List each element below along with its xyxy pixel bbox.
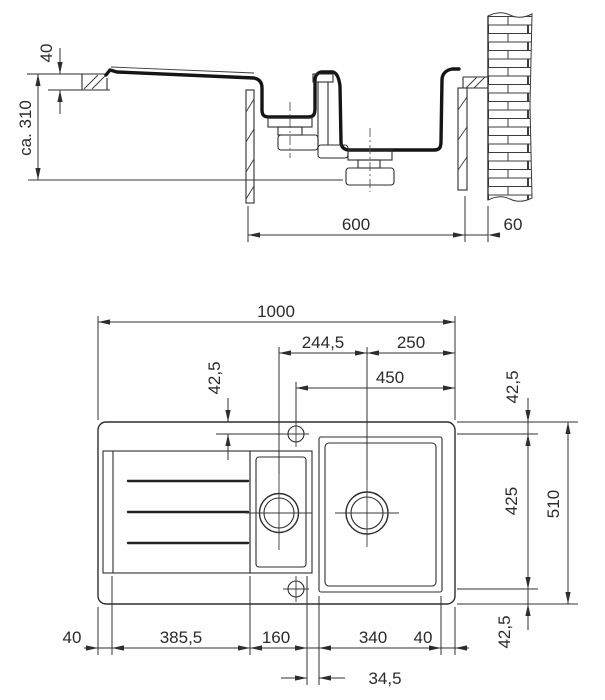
dim-rim-height-label: 40 [37,44,56,63]
dim-clearance-depth-label: ca. 310 [16,100,35,156]
dim-drain-to-edge: 250 [367,333,455,356]
brick-wall [488,13,532,202]
dim-right-bottom-margin: 42,5 [495,589,531,649]
dim-right-margin-label: 40 [414,628,433,647]
dim-overall-width-label: 1000 [257,302,295,321]
dim-tap-span-label: 425 [502,487,521,515]
main-bowl [319,437,442,592]
small-bowl-drain [268,102,318,158]
dim-tap-offset-left: 42,5 [205,361,283,460]
cabinet-panel-left [246,90,254,203]
dim-drain-to-edge-label: 250 [397,333,425,352]
dim-tap-to-edge: 450 [296,368,455,424]
dim-overall-depth: 510 [544,422,571,604]
drainboard [103,451,250,573]
dim-tap-offset-left-label: 42,5 [205,361,224,394]
dim-right-top-margin-label: 42,5 [503,370,522,403]
countertop-right [463,77,488,88]
plan-view: 1000 244,5 250 450 42,5 [63,302,578,688]
dim-wall-clearance: 60 [465,206,522,242]
dim-small-bowl-width-label: 160 [262,628,290,647]
dim-cabinet-width: 600 [248,196,465,242]
dim-drainboard-width-label: 385,5 [160,628,203,647]
dim-clearance-depth: ca. 310 [16,74,41,180]
dim-cabinet-width-label: 600 [342,215,370,234]
dim-right-bottom-margin-label: 42,5 [495,615,514,648]
dim-tap-span: 425 [502,434,531,589]
dim-drain-spacing-label: 244,5 [302,333,345,352]
drawing-svg: 40 ca. 310 600 60 [0,0,605,700]
tap-hole-bottom [283,576,309,602]
sink-profile [106,69,459,150]
dim-rim-height: 40 [37,44,63,114]
tap-hole-top [283,421,309,447]
dim-tap-to-edge-label: 450 [376,368,404,387]
sink-technical-drawing: 40 ca. 310 600 60 [0,0,605,700]
main-bowl-drain [346,128,394,192]
dim-bowl-gap-label: 34,5 [368,669,401,688]
dim-right-top-margin: 42,5 [503,370,531,434]
dim-bowl-gap: 34,5 [281,669,402,688]
dim-overall-width: 1000 [98,302,455,420]
dim-drain-spacing: 244,5 [279,333,367,480]
section-view: 40 ca. 310 600 60 [16,13,532,242]
dim-left-margin-label: 40 [63,628,82,647]
cabinet-panel-right [458,88,467,190]
dim-main-bowl-width-label: 340 [359,628,387,647]
dim-wall-clearance-label: 60 [504,215,523,234]
dim-overall-depth-label: 510 [544,490,563,518]
